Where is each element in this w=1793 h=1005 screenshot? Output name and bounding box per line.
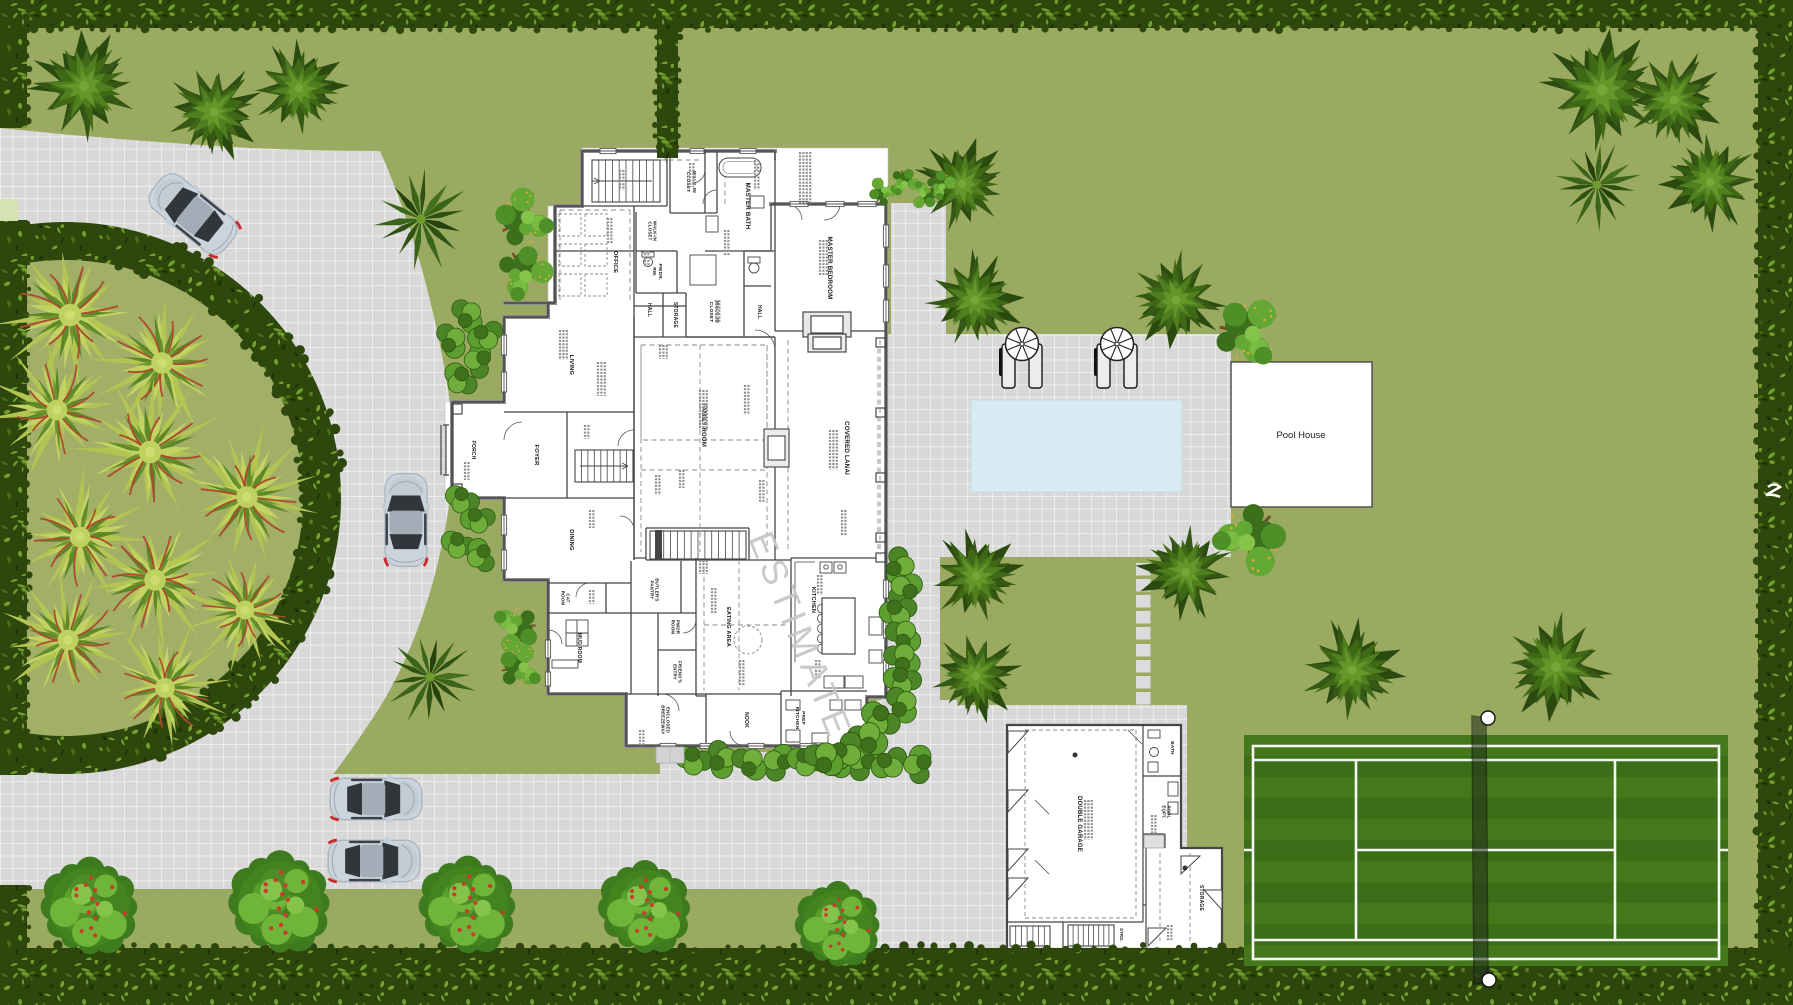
svg-text:PORCH: PORCH — [470, 440, 476, 459]
svg-text:PWDR.: PWDR. — [657, 264, 663, 281]
svg-text:OFFICE: OFFICE — [612, 251, 618, 273]
svg-text:EATING AREA: EATING AREA — [725, 607, 731, 647]
svg-text:BATH: BATH — [1170, 741, 1175, 755]
svg-text:DOUBLE GARAGE: DOUBLE GARAGE — [1076, 796, 1082, 852]
svg-text:CLOSET: CLOSET — [647, 221, 652, 240]
svg-text:MASTER BATH: MASTER BATH — [744, 183, 751, 230]
svg-text:HALL: HALL — [646, 303, 652, 317]
svg-text:PANTRY: PANTRY — [649, 581, 654, 600]
svg-text:DINING: DINING — [568, 529, 574, 551]
svg-text:Pool House: Pool House — [1276, 430, 1325, 441]
svg-text:CLOSET: CLOSET — [708, 302, 714, 323]
svg-text:STORAGE: STORAGE — [1198, 885, 1204, 911]
svg-text:BREEZEWAY: BREEZEWAY — [660, 705, 665, 734]
svg-text:HALL: HALL — [756, 305, 762, 319]
svg-text:NOOK: NOOK — [743, 712, 749, 728]
svg-text:ENTRY: ENTRY — [672, 664, 677, 680]
svg-text:PREP: PREP — [800, 711, 806, 725]
svg-text:STORAGE: STORAGE — [672, 302, 678, 328]
svg-text:EQPT.: EQPT. — [1162, 805, 1167, 818]
svg-text:RM.: RM. — [651, 267, 657, 276]
svg-text:ROOM: ROOM — [560, 591, 565, 606]
svg-text:KITCHEN: KITCHEN — [794, 707, 800, 730]
svg-text:ROOM: ROOM — [670, 620, 675, 635]
svg-text:FOYER: FOYER — [533, 445, 539, 467]
svg-text:STRG.: STRG. — [1119, 928, 1124, 942]
svg-text:COVERED LANAI: COVERED LANAI — [843, 421, 850, 475]
svg-text:MUD ROOM: MUD ROOM — [576, 633, 582, 663]
svg-text:LIVING: LIVING — [568, 355, 574, 376]
